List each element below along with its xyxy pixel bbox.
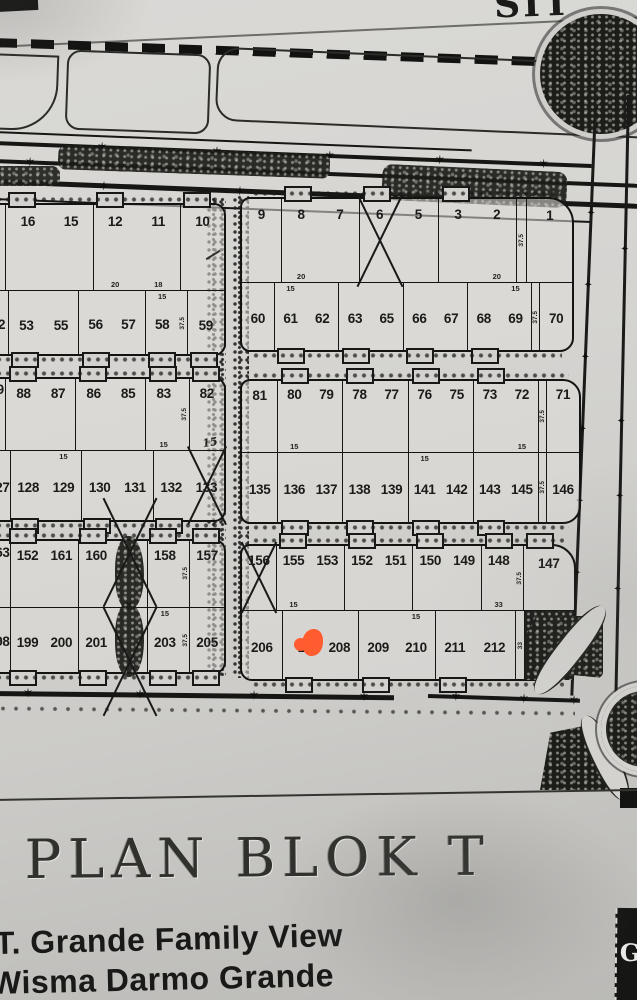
dimension-label: 15	[201, 434, 218, 449]
lot-number: 57	[121, 317, 135, 332]
developer-name-line1: T. Grande Family View	[0, 917, 343, 962]
dimension-column: 37.5	[538, 381, 546, 452]
lot-cell: 7	[320, 199, 359, 282]
lot-cell: 158	[147, 541, 182, 607]
lot-cell: 8315	[145, 379, 181, 450]
dimension-label-rotated: 37.5	[539, 410, 546, 423]
dimension-label-rotated: 37.5	[532, 311, 539, 324]
lamp-post-icon: ✶	[358, 690, 369, 703]
lot-cell: 149	[447, 546, 481, 610]
lot-row: 8988878685831537.58215	[0, 379, 224, 450]
lot-cell: 15	[49, 205, 92, 290]
lot-cell: 139	[376, 453, 408, 524]
road-ornament-icon: ✦	[620, 244, 629, 255]
lot-number: 209	[367, 640, 389, 655]
dimension-column: 37.5	[182, 541, 189, 607]
lot-number: 135	[249, 482, 271, 497]
lot-number: 198	[0, 634, 10, 649]
lot-row: 16315216116015837.5157	[0, 541, 224, 607]
lot-cell: 60	[242, 283, 274, 351]
lot-number: 81	[252, 388, 266, 451]
lot-number: 208	[329, 640, 351, 655]
lamp-post-icon: ✶	[134, 688, 145, 701]
lot-number: 69	[508, 311, 522, 326]
lamp-post-icon: ✶	[22, 687, 33, 700]
lot-number: 88	[16, 386, 30, 450]
lot-cell: 53	[8, 291, 44, 355]
lot-cell: 146	[546, 453, 579, 524]
lot-number: 152	[17, 548, 39, 607]
shrub-scallops	[0, 356, 217, 363]
logo-letter: G	[619, 938, 637, 1000]
lot-number: 60	[251, 311, 265, 326]
road-ornament-icon: ✦	[586, 208, 596, 219]
dimension-label-rotated: 37.5	[518, 234, 525, 247]
lot-cell: 130	[81, 451, 117, 522]
road-ornament-icon: ✦	[615, 491, 624, 502]
lot-cell: 71	[546, 381, 579, 452]
dimension-label-rotated: 37.5	[181, 408, 188, 421]
lot-row: 16151220111810	[0, 205, 224, 290]
lot-cell: 135	[242, 453, 277, 524]
lot-number: 1	[546, 208, 553, 282]
block-left-2: 8988878685831537.58215127128129151301311…	[0, 377, 226, 522]
lot-number: 210	[405, 640, 427, 655]
lot-cell: 86	[75, 379, 111, 450]
lot-cell: 132	[153, 451, 189, 522]
lot-cell: 77	[376, 381, 408, 452]
lot-cell: 153	[310, 546, 344, 610]
lot-cell: 142	[441, 453, 473, 524]
site-plan-photo: SIT ✶✶✶✶✶ ✶✶✶✶✶ ✶✶✶✶ ✦✦✦✦✦✦✦ ✦✦✦✦ 161512…	[0, 0, 637, 1000]
shrub-scallops	[0, 532, 217, 539]
lot-number: 65	[379, 311, 393, 326]
lot-cell: 1	[526, 199, 572, 282]
shrub-scallops	[252, 190, 562, 197]
lot-cell: 6915	[500, 283, 532, 351]
lot-cell: 73	[473, 381, 506, 452]
lot-cell: 52	[0, 291, 8, 355]
photo-corner-mark	[0, 0, 38, 12]
lot-number: 149	[453, 553, 475, 610]
dimension-column: 37.5	[531, 283, 539, 351]
lot-number: 12	[108, 214, 122, 290]
lot-number: 131	[124, 480, 146, 495]
lot-cell: 16	[5, 205, 49, 290]
lot-cell: 68	[467, 283, 500, 351]
lot-number: 152	[351, 553, 373, 610]
lot-cell: 55	[44, 291, 79, 355]
lot-cell: 1118	[137, 205, 180, 290]
lot-number: 137	[316, 482, 338, 497]
lot-cell: 820	[281, 199, 321, 282]
dimension-label: 20	[111, 280, 119, 289]
lot-cell: 1220	[93, 205, 137, 290]
dimension-column: 33	[515, 611, 524, 680]
lot-number: 142	[446, 482, 468, 497]
lot-cell: 62	[306, 283, 338, 351]
lot-number: 157	[196, 548, 218, 607]
lot-number: 147	[538, 556, 560, 610]
page-title: PLAN BLOK T	[25, 824, 585, 891]
lot-cell: 5815	[145, 291, 179, 355]
lot-number: 146	[552, 482, 574, 497]
lot-cell: 10	[180, 205, 224, 290]
lot-cell: 81	[242, 381, 277, 452]
lot-row: 1981992002012031537.5205	[0, 607, 224, 674]
shrub-scallops	[252, 681, 564, 688]
lot-cell: 131	[117, 451, 152, 522]
lot-cell: 161	[44, 541, 78, 607]
lot-number: 3	[454, 207, 461, 282]
dimension-label: 15	[420, 454, 428, 463]
lot-number: 158	[154, 548, 176, 607]
shrub-scallops	[252, 352, 562, 359]
lot-cell: 128	[10, 451, 46, 522]
dimension-label-rotated: 37.5	[182, 567, 189, 580]
shrub-scallops	[252, 537, 564, 544]
lot-number: 161	[51, 548, 73, 607]
lot-number: 2	[493, 207, 500, 282]
lot-number: 11	[151, 214, 165, 290]
lot-number: 145	[511, 482, 533, 497]
shrub-row	[0, 705, 575, 716]
lot-number: 85	[121, 386, 135, 450]
dimension-label: 20	[493, 272, 501, 281]
lot-number: 79	[319, 387, 333, 451]
lamp-post-icon: ✶	[434, 153, 445, 166]
dimension-label: 15	[159, 440, 167, 449]
lot-cell: 59	[187, 291, 224, 355]
lot-row: 5253555657581537.559	[0, 290, 224, 355]
lot-cell: 150	[412, 546, 447, 610]
lot-number: 52	[0, 317, 5, 332]
lot-number: 15	[64, 214, 78, 290]
lot-cell: 198	[0, 608, 10, 674]
lot-cell: 3	[438, 199, 478, 282]
lot-cell: 88	[5, 379, 41, 450]
lot-row: 606115626365666768691537.570	[242, 282, 572, 351]
lot-number: 87	[51, 386, 65, 450]
lot-number: 63	[348, 311, 362, 326]
lamp-post-icon: ✶	[98, 179, 109, 192]
dimension-label: 15	[59, 452, 67, 461]
lot-cell: 9	[242, 199, 281, 282]
lot-cell: 8015	[277, 381, 310, 452]
lot-row: 12712812915130131132133	[0, 450, 224, 522]
road-ornament-icon: ✦	[613, 584, 622, 595]
lot-cell: 79	[310, 381, 342, 452]
dimension-column: 37.5	[538, 453, 546, 524]
lot-cell	[113, 541, 147, 607]
dimension-column: 37.5	[516, 199, 526, 282]
lot-number: 78	[352, 387, 366, 451]
lot-cell: 14833	[481, 546, 516, 610]
road-island	[0, 52, 59, 131]
sheet-edge-bottom	[0, 789, 637, 801]
lot-cell: 85	[111, 379, 146, 450]
lot-number: 71	[556, 387, 570, 451]
lamp-post-icon: ✶	[518, 692, 529, 705]
lot-cell: 66	[403, 283, 436, 351]
lot-row: 1351361371381391411514214314537.5146	[242, 452, 579, 524]
lamp-post-icon: ✶	[450, 690, 461, 703]
lot-number: 89	[0, 382, 4, 449]
lot-number: 67	[444, 311, 458, 326]
lot-cell: 211	[435, 611, 474, 680]
dimension-column: 37.5	[516, 546, 523, 610]
lot-cell: 57	[112, 291, 145, 355]
lot-cell: 15515	[276, 546, 311, 610]
lot-number: 153	[316, 553, 338, 610]
lot-number: 138	[349, 482, 371, 497]
lot-cell: 2	[282, 611, 321, 680]
lot-row: 20622082092101521121233	[242, 610, 574, 680]
lot-number: 160	[85, 548, 107, 607]
shrub-scallops	[0, 674, 217, 681]
dimension-label-rotated: 37.5	[179, 317, 186, 330]
lot-number: 201	[85, 635, 107, 650]
lot-number: 212	[484, 640, 506, 655]
lot-cell: 6115	[274, 283, 307, 351]
lot-cell: 145	[506, 453, 538, 524]
lot-cell: 70	[539, 283, 572, 351]
lot-number: 53	[19, 318, 33, 333]
lot-cell: 6	[359, 199, 399, 282]
lot-number: 73	[483, 387, 497, 451]
lot-number: 8	[297, 207, 304, 282]
lot-row: 818015797877767573721537.571	[242, 381, 579, 452]
lot-number: 59	[199, 318, 213, 333]
lot-cell: 208	[320, 611, 358, 680]
lot-number: 128	[17, 480, 39, 495]
lot-cell: 205	[189, 608, 224, 674]
lamp-post-icon: ✶	[568, 693, 579, 706]
lot-cell: 212	[474, 611, 516, 680]
road-island	[65, 50, 212, 135]
lot-number: 127	[0, 480, 10, 495]
lot-number: 150	[419, 553, 441, 610]
lot-cell: 156	[242, 546, 276, 610]
lot-number: 66	[412, 311, 426, 326]
lot-number: 62	[315, 311, 329, 326]
lot-cell: 136	[277, 453, 310, 524]
logo-strip: G	[615, 908, 637, 1000]
lot-cell: 56	[78, 291, 112, 355]
dimension-label-rotated: 37.5	[182, 634, 189, 647]
lot-number: 56	[88, 317, 102, 332]
lot-number: 9	[258, 207, 265, 282]
lot-number: 86	[86, 386, 100, 450]
lot-cell: 63	[338, 283, 371, 351]
lot-number: 136	[284, 482, 306, 497]
tree-patch	[0, 166, 60, 186]
shrub-scallops	[252, 524, 569, 531]
dimension-label-rotated: 37.5	[516, 572, 523, 585]
bottom-road-left: ✶✶✶✶	[0, 691, 394, 700]
lot-number: 139	[381, 482, 403, 497]
lot-cell: 152	[10, 541, 45, 607]
dimension-label: 18	[154, 280, 162, 289]
lot-row: 156155151531521511501491483337.5147	[242, 546, 574, 610]
lot-number: 141	[414, 482, 436, 497]
lot-cell	[113, 608, 147, 674]
lot-cell: 220	[477, 199, 516, 282]
lot-cell: 200	[44, 608, 78, 674]
lot-cell: 20315	[147, 608, 182, 674]
dimension-label-rotated: 37.5	[539, 481, 546, 494]
dimension-column: 37.5	[182, 608, 189, 674]
lot-number: 58	[155, 317, 169, 332]
lot-number: 163	[0, 545, 10, 606]
lot-row: 9820765322037.51	[242, 199, 572, 282]
lot-cell: 206	[242, 611, 282, 680]
shrub-scallops	[0, 370, 217, 377]
lot-cell: 147	[523, 546, 575, 610]
lot-number: 70	[549, 311, 563, 326]
developer-name-line2: Wisma Darmo Grande	[0, 957, 334, 1000]
road-ornament-icon: ✦	[583, 280, 593, 291]
lot-number: 10	[195, 214, 209, 290]
dimension-label: 15	[289, 600, 297, 609]
lot-cell: 163	[0, 541, 10, 607]
lot-number: 7	[336, 207, 343, 282]
lot-number: 206	[251, 640, 273, 655]
bottom-road-right: ✶✶✶	[428, 694, 580, 703]
lot-number: 199	[17, 635, 39, 650]
lot-number: 211	[444, 640, 465, 655]
dimension-label: 15	[290, 442, 298, 451]
lot-cell: 7215	[506, 381, 538, 452]
lot-number: 151	[385, 553, 407, 610]
shrub-scallops	[0, 196, 217, 203]
block-left-1: 161512201118105253555657581537.559	[0, 203, 226, 356]
lot-number: 132	[160, 480, 182, 495]
lot-cell: 151	[379, 546, 413, 610]
lot-cell: 127	[0, 451, 10, 522]
block-right-2: 818015797877767573721537.571135136137138…	[240, 379, 581, 524]
lamp-post-icon: ✶	[248, 689, 259, 702]
dimension-label: 15	[412, 612, 420, 621]
dimension-label: 15	[158, 292, 166, 301]
tree-patch	[58, 145, 331, 178]
block-right-1: 9820765322037.51606115626365666768691537…	[240, 197, 574, 352]
lot-number: 200	[51, 635, 73, 650]
road-ornament-icon: ✦	[616, 416, 625, 427]
dimension-label: 20	[297, 272, 305, 281]
lot-cell: 199	[10, 608, 45, 674]
dimension-label: 15	[286, 284, 294, 293]
dimension-label: 15	[511, 284, 519, 293]
block-right-3: 156155151531521511501491483337.514720622…	[240, 544, 576, 681]
lot-number: 5	[415, 207, 422, 282]
lot-cell: 157	[189, 541, 224, 607]
lot-number: 55	[54, 318, 68, 333]
road-ornament-icon: ✦	[580, 352, 590, 363]
lot-cell: 152	[344, 546, 379, 610]
lot-cell: 75	[441, 381, 473, 452]
lot-cell: 12915	[46, 451, 81, 522]
lot-number: 129	[53, 480, 75, 495]
lot-number: 61	[283, 311, 297, 326]
dimension-column: 37.5	[181, 379, 189, 450]
lot-cell: 87	[41, 379, 76, 450]
shrub-scallops	[252, 372, 569, 379]
dimension-label: 15	[161, 609, 169, 618]
lot-cell: 65	[371, 283, 403, 351]
lot-number: 68	[477, 311, 491, 326]
lot-number: 76	[417, 387, 431, 451]
lot-cell: 5	[399, 199, 438, 282]
dimension-label-rotated: 33	[517, 642, 524, 649]
lot-cell: 143	[473, 453, 506, 524]
block-left-3: 16315216116015837.5157198199200201203153…	[0, 539, 226, 674]
lot-cell: 76	[408, 381, 441, 452]
lot-cell: 67	[435, 283, 467, 351]
lot-cell: 78	[342, 381, 375, 452]
lot-cell: 137	[310, 453, 342, 524]
lot-number: 143	[479, 482, 501, 497]
lot-number: 205	[196, 635, 218, 650]
dimension-column: 37.5	[179, 291, 187, 355]
lot-cell: 14115	[408, 453, 441, 524]
lot-cell: 21015	[397, 611, 435, 680]
lot-cell: 138	[342, 453, 375, 524]
lot-number: 130	[89, 480, 111, 495]
lot-number: 77	[384, 387, 398, 451]
lot-number: 16	[21, 214, 35, 290]
dimension-label: 15	[518, 442, 526, 451]
lot-number: 75	[450, 387, 464, 451]
lot-cell: 133	[189, 451, 224, 522]
lot-cell: 8215	[189, 379, 225, 450]
dimension-label: 33	[494, 600, 502, 609]
lot-cell: 209	[358, 611, 397, 680]
lamp-post-icon: ✶	[538, 157, 549, 170]
lot-number: 203	[154, 635, 176, 650]
